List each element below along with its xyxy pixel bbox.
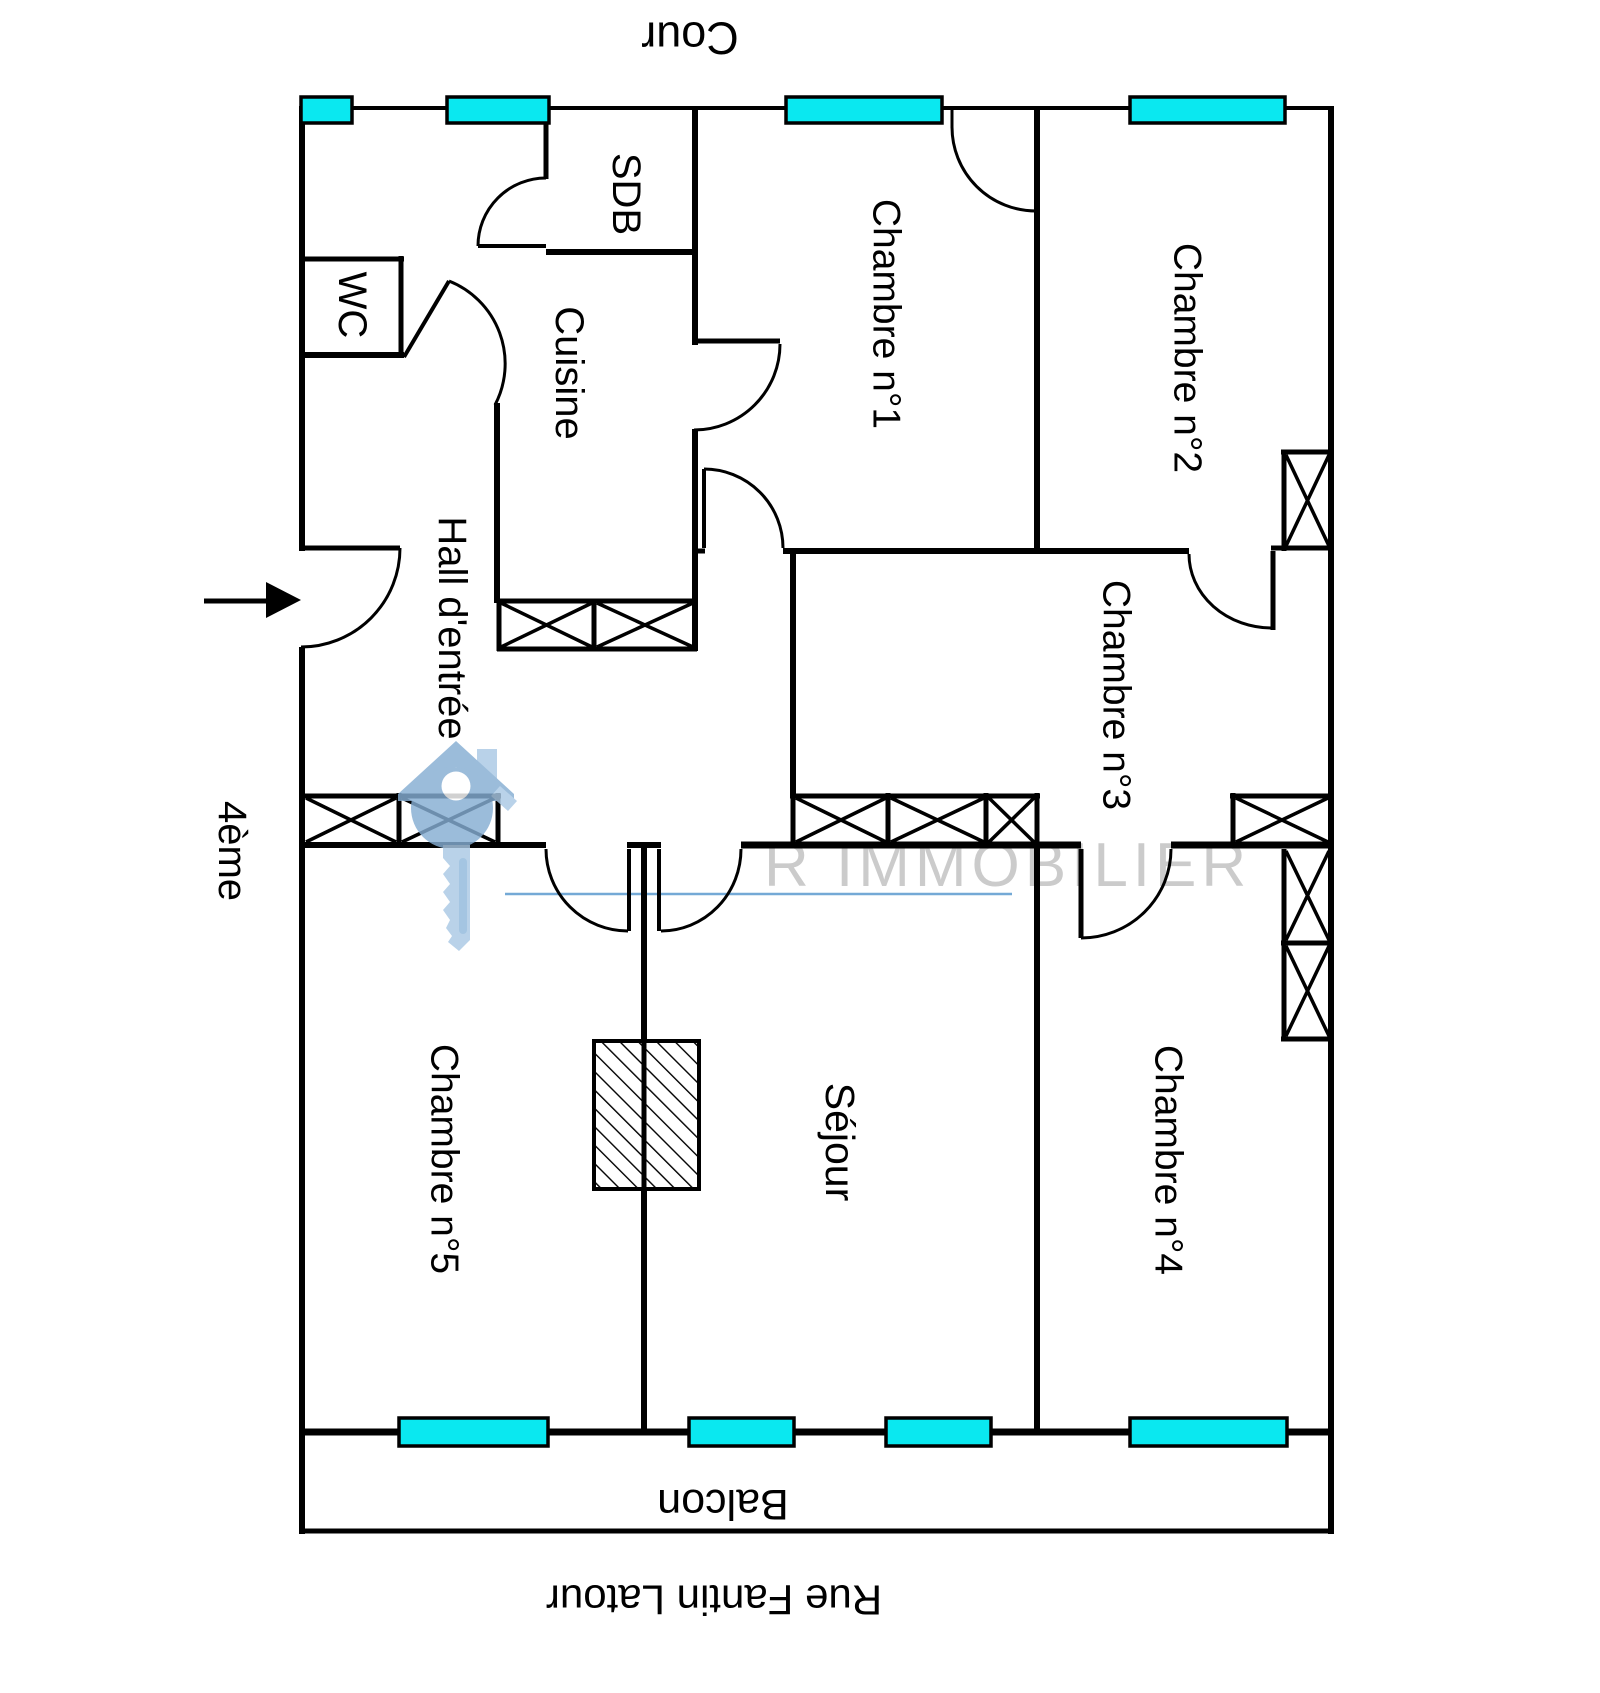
svg-text:Hall d'entrée: Hall d'entrée: [430, 516, 474, 739]
svg-text:Chambre n°3: Chambre n°3: [1095, 580, 1138, 810]
svg-text:Cuisine: Cuisine: [547, 306, 591, 439]
svg-text:Chambre n°1: Chambre n°1: [865, 199, 908, 429]
svg-text:Chambre n°5: Chambre n°5: [423, 1044, 466, 1274]
svg-text:4ème: 4ème: [210, 801, 254, 901]
svg-text:Rue Fantin Latour: Rue Fantin Latour: [546, 1577, 882, 1624]
svg-text:WC: WC: [330, 272, 374, 339]
svg-text:Balcon: Balcon: [657, 1480, 788, 1528]
svg-text:Chambre n°2: Chambre n°2: [1166, 243, 1209, 473]
svg-text:Cour: Cour: [641, 13, 739, 64]
svg-text:SDB: SDB: [604, 153, 648, 235]
svg-text:Séjour: Séjour: [817, 1083, 863, 1202]
svg-text:R IMMOBILIER: R IMMOBILIER: [764, 831, 1251, 900]
svg-text:Chambre n°4: Chambre n°4: [1147, 1045, 1190, 1275]
